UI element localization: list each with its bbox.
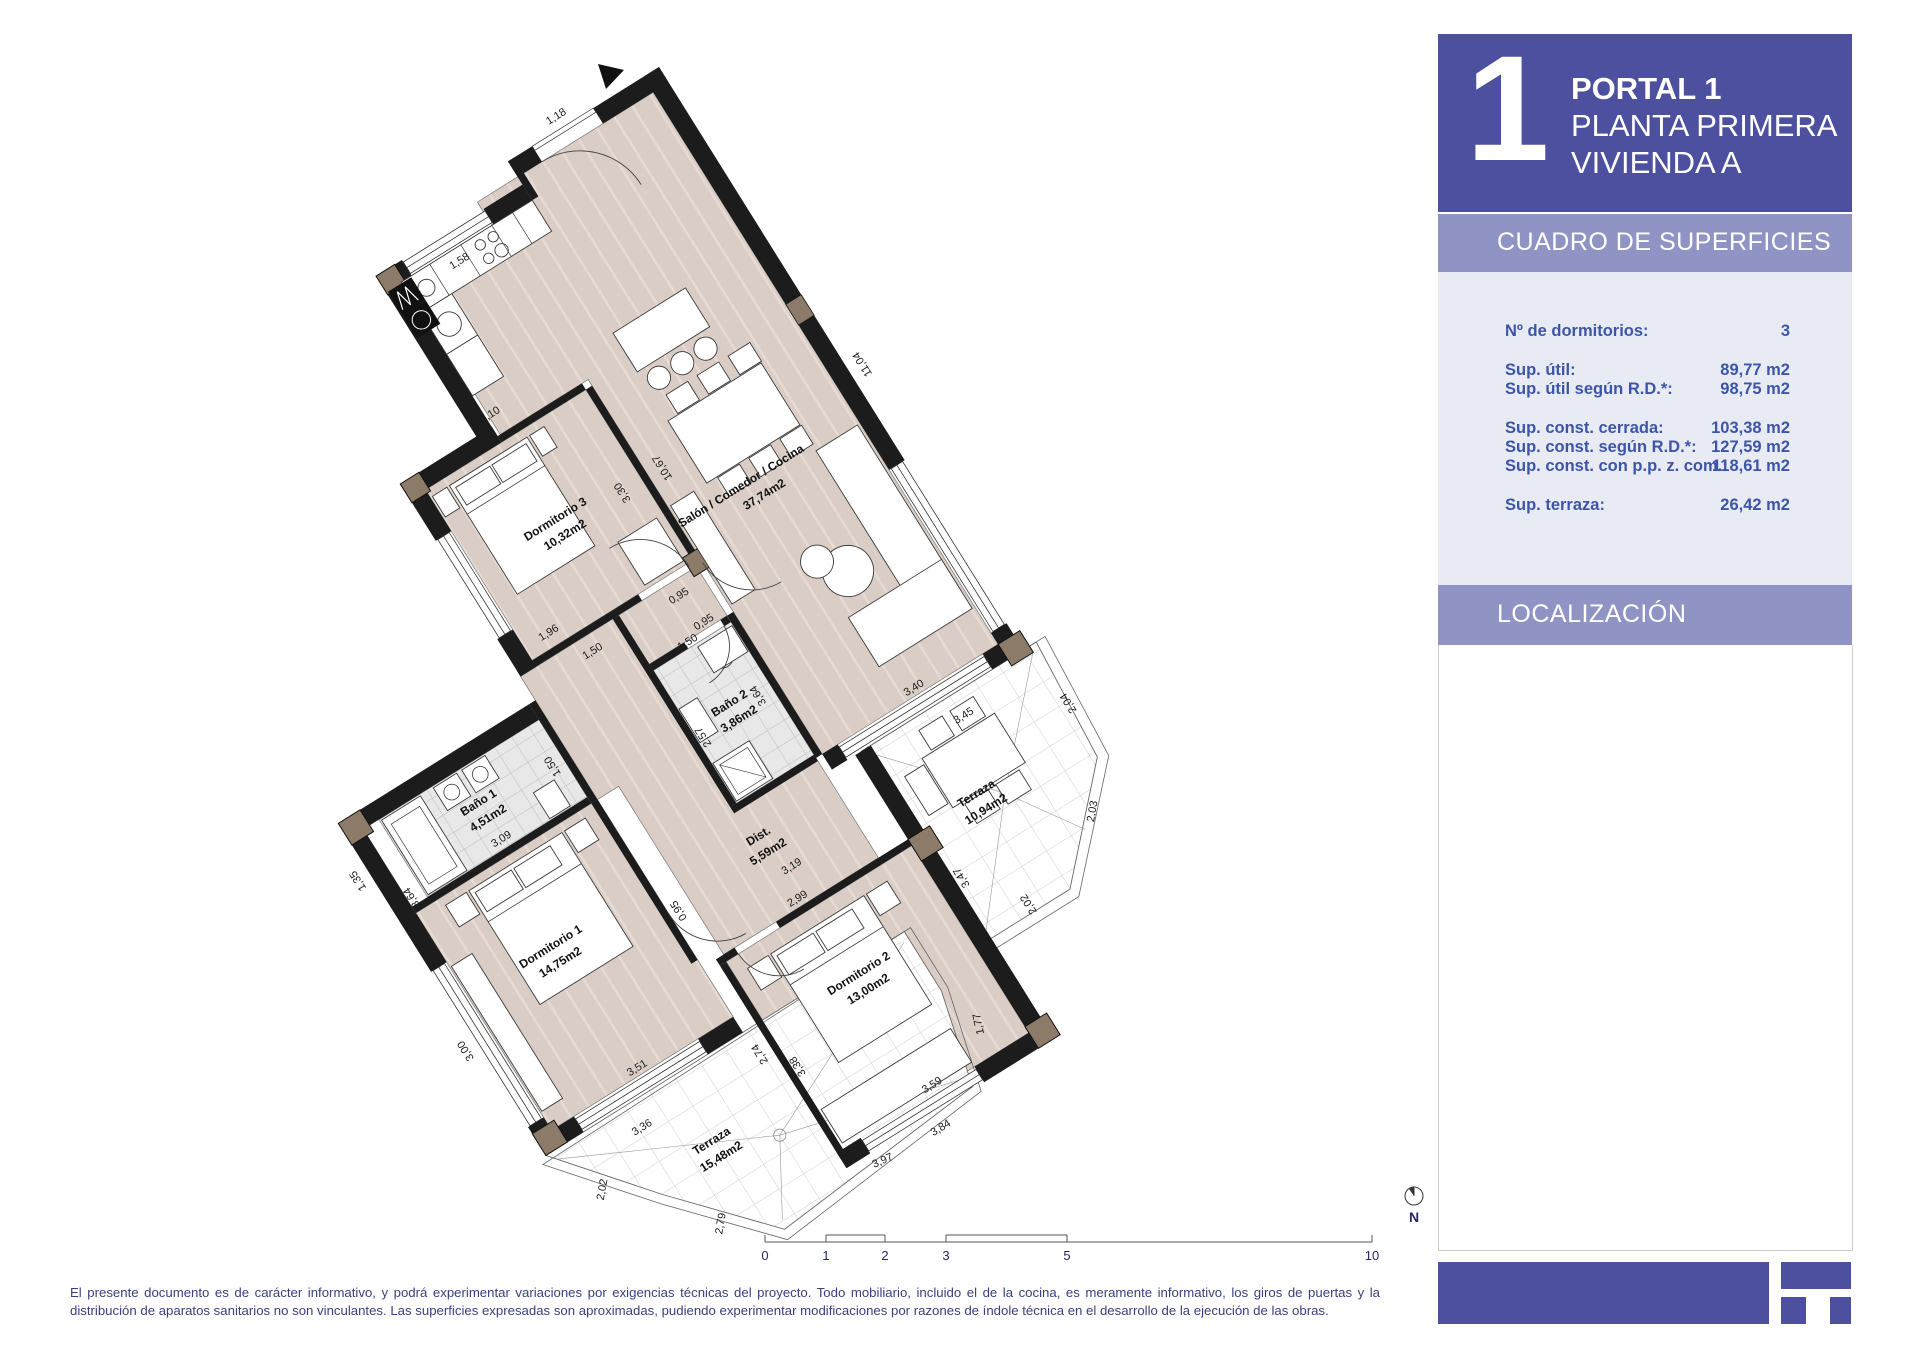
svg-text:3,84: 3,84 <box>929 1117 954 1139</box>
svg-text:1,18: 1,18 <box>544 106 569 128</box>
svg-text:1: 1 <box>822 1248 829 1263</box>
svg-text:2,02: 2,02 <box>595 1178 611 1201</box>
svg-text:1,35: 1,35 <box>348 868 370 893</box>
svg-text:5: 5 <box>1063 1248 1070 1263</box>
svg-text:11,04: 11,04 <box>851 350 875 379</box>
svg-text:3,00: 3,00 <box>455 1039 477 1064</box>
svg-text:10: 10 <box>1365 1248 1379 1263</box>
svg-text:2: 2 <box>881 1248 888 1263</box>
svg-text:2,03: 2,03 <box>1085 800 1101 823</box>
svg-text:3: 3 <box>942 1248 949 1263</box>
svg-text:2,79: 2,79 <box>713 1212 729 1235</box>
svg-text:N: N <box>1409 1209 1419 1225</box>
svg-text:0: 0 <box>761 1248 768 1263</box>
